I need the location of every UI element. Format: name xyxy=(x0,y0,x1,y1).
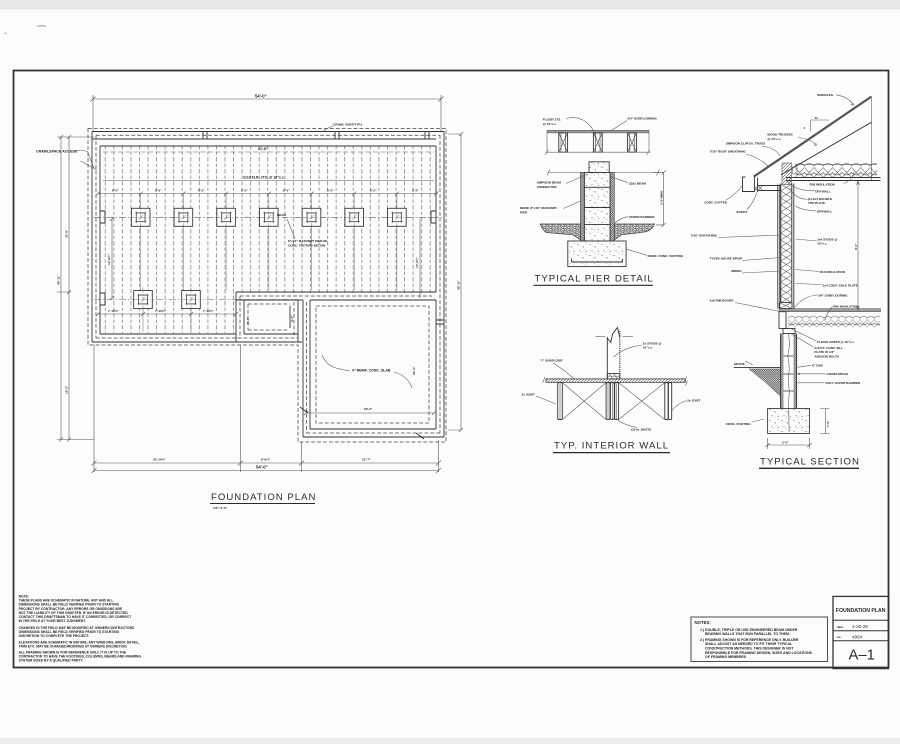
svg-text:TOP PLATE: TOP PLATE xyxy=(808,201,825,205)
svg-text:1-20-25: 1-20-25 xyxy=(852,624,868,629)
svg-text:ANCHOR BOLTS: ANCHOR BOLTS xyxy=(814,354,839,358)
svg-text:2x JOIST: 2x JOIST xyxy=(687,399,700,403)
svg-text:46'-11": 46'-11" xyxy=(457,280,461,290)
svg-text:3/4" SUBFLOORING: 3/4" SUBFLOORING xyxy=(627,117,657,121)
svg-text:54'-0": 54'-0" xyxy=(256,465,268,470)
svg-text:REINF. CONC. FOOTING: REINF. CONC. FOOTING xyxy=(648,254,684,258)
svg-text:1/4"=1'-0": 1/4"=1'-0" xyxy=(213,506,228,510)
svg-text:2x4 CONT. SOLE PLATE: 2x4 CONT. SOLE PLATE xyxy=(823,283,858,287)
svg-text:16"o.c.: 16"o.c. xyxy=(643,346,653,350)
svg-text:7'-10½": 7'-10½" xyxy=(108,309,120,313)
svg-text:7/16" SHEATHING: 7/16" SHEATHING xyxy=(691,234,718,238)
svg-text:SOFFIT: SOFFIT xyxy=(736,210,747,214)
svg-text:8'-2": 8'-2" xyxy=(283,189,290,193)
svg-text:(2)-2x JOISTS: (2)-2x JOISTS xyxy=(631,428,651,432)
svg-text:CONC. FOOTING BELOW: CONC. FOOTING BELOW xyxy=(288,243,325,247)
svg-text:TRIM ETC. MAY BE CHANGED/MODIF: TRIM ETC. MAY BE CHANGED/MODIFIED AT OWN… xyxy=(19,645,128,649)
svg-text:TYVEK HOUSE WRAP: TYVEK HOUSE WRAP xyxy=(710,257,743,261)
svg-text:R30 INSULATION: R30 INSULATION xyxy=(833,305,859,309)
svg-text:8'-2": 8'-2" xyxy=(327,189,334,193)
svg-text:8'-2": 8'-2" xyxy=(370,189,377,193)
svg-text:CONC. FOOTING: CONC. FOOTING xyxy=(726,422,752,426)
svg-text:46'-11": 46'-11" xyxy=(57,275,61,285)
svg-text:6'-4": 6'-4" xyxy=(290,315,294,322)
svg-text:8'-1": 8'-1" xyxy=(854,243,858,250)
svg-text:TYP. INTERIOR WALL: TYP. INTERIOR WALL xyxy=(554,441,669,452)
svg-text:FOUNDATION PLAN: FOUNDATION PLAN xyxy=(211,492,316,503)
svg-text:22'-8": 22'-8" xyxy=(258,147,268,151)
svg-text:SHINGLES: SHINGLES xyxy=(817,93,833,97)
svg-text:4" REINF. CONC. SLAB: 4" REINF. CONC. SLAB xyxy=(352,369,391,373)
svg-text:OF FRAMING MEMBERS: OF FRAMING MEMBERS xyxy=(705,655,747,659)
svg-text:2x10 FLR. JTS. @ 16"o.c.: 2x10 FLR. JTS. @ 16"o.c. xyxy=(243,176,285,180)
svg-text:BEARING WALLS THAT RUN PARALLE: BEARING WALLS THAT RUN PARALLEL TO THEM. xyxy=(705,632,790,636)
svg-text:CRAWL VENT(TYP.): CRAWL VENT(TYP.) xyxy=(333,123,362,127)
svg-text:POLY VAPOR BARRIER: POLY VAPOR BARRIER xyxy=(826,381,861,385)
svg-text:TYPICAL PIER DETAIL: TYPICAL PIER DETAIL xyxy=(535,274,654,285)
svg-text:R38 INSULATION: R38 INSULATION xyxy=(810,182,836,186)
svg-text:8'-6½": 8'-6½" xyxy=(261,458,271,462)
svg-text:(2)2x BEAM: (2)2x BEAM xyxy=(629,181,647,185)
svg-text:DRYWALL: DRYWALL xyxy=(815,189,830,193)
svg-text:PIER: PIER xyxy=(520,210,528,214)
svg-text:4: 4 xyxy=(804,126,806,130)
svg-text:3/4" SUBFLOORING: 3/4" SUBFLOORING xyxy=(818,293,848,297)
svg-text:FLOOR JOISTS @ 16"o.c.: FLOOR JOISTS @ 16"o.c. xyxy=(817,340,855,344)
svg-text:SIMPSON CLIP EA. TRUSS: SIMPSON CLIP EA. TRUSS xyxy=(726,142,765,146)
svg-text:SIDING: SIDING xyxy=(731,269,742,273)
svg-text:7'-10½": 7'-10½" xyxy=(203,309,215,313)
svg-text:CRAWLSPACE ACCESS: CRAWLSPACE ACCESS xyxy=(36,150,78,154)
svg-text:21'-7": 21'-7" xyxy=(362,458,371,462)
svg-text:22'-10½": 22'-10½" xyxy=(153,458,166,462)
svg-text:IN THE FIELD AT YOUR BEST JUDG: IN THE FIELD AT YOUR BEST JUDGMENT. xyxy=(19,619,86,623)
svg-text:54'-0": 54'-0" xyxy=(255,94,267,99)
svg-text:2'-0"(MIN): 2'-0"(MIN) xyxy=(660,191,664,205)
svg-text:8'-2": 8'-2" xyxy=(412,189,419,193)
svg-text:12'-6½": 12'-6½" xyxy=(415,256,419,268)
svg-text:CRAWLSPACE: CRAWLSPACE xyxy=(827,372,849,376)
svg-text:20'-2": 20'-2" xyxy=(412,366,416,375)
svg-text:8'-2": 8'-2" xyxy=(155,189,162,193)
svg-text:R13 INSULATION: R13 INSULATION xyxy=(820,270,846,274)
svg-text:@ 24"o.c.: @ 24"o.c. xyxy=(767,137,781,141)
svg-text:2x6 RIM BOARD: 2x6 RIM BOARD xyxy=(710,299,735,303)
svg-text:7/16" ROOF SHEATHING: 7/16" ROOF SHEATHING xyxy=(710,149,747,153)
svg-text:NOTES:: NOTES: xyxy=(695,620,712,625)
svg-text:1'-0": 1'-0" xyxy=(826,420,830,427)
svg-text:DISCRETION TO COMPLETE THE PRO: DISCRETION TO COMPLETE THE PROJECT. xyxy=(19,634,90,638)
svg-text:CONT. GUTTER: CONT. GUTTER xyxy=(704,201,728,205)
svg-text:CONNECTOR: CONNECTOR xyxy=(537,185,558,189)
svg-text:@ 16"o.c.: @ 16"o.c. xyxy=(543,122,557,126)
svg-text:FOUNDATION PLAN: FOUNDATION PLAN xyxy=(836,608,886,614)
svg-text:15'-2": 15'-2" xyxy=(65,385,69,394)
svg-text:no.: no. xyxy=(837,635,842,639)
svg-text:¾" SUBFLOOR: ¾" SUBFLOOR xyxy=(540,359,563,363)
svg-text:20'-2": 20'-2" xyxy=(364,407,373,411)
svg-text:16"o.c.: 16"o.c. xyxy=(817,242,827,246)
svg-text:12: 12 xyxy=(815,116,819,120)
svg-text:TYPICAL SECTION: TYPICAL SECTION xyxy=(760,457,860,468)
svg-text:12'-6½": 12'-6½" xyxy=(107,253,111,265)
svg-text:8" CMU: 8" CMU xyxy=(812,364,824,368)
svg-text:date: date xyxy=(837,625,844,629)
svg-text:A–1: A–1 xyxy=(849,648,875,664)
svg-text:31'-9": 31'-9" xyxy=(65,229,69,238)
svg-text:8'-2": 8'-2" xyxy=(241,189,248,193)
svg-text:8'-4": 8'-4" xyxy=(246,317,250,324)
svg-text:2'-0": 2'-0" xyxy=(782,441,789,445)
svg-text:VAPOR BARRIER: VAPOR BARRIER xyxy=(629,215,655,219)
svg-text:SYSTEM SIZED BY A QUALIFIED PA: SYSTEM SIZED BY A QUALIFIED PARTY. xyxy=(19,659,84,663)
svg-text:7'-10½": 7'-10½" xyxy=(155,309,167,313)
svg-text:2x JOIST: 2x JOIST xyxy=(522,393,535,397)
svg-text:8'-2": 8'-2" xyxy=(112,189,119,193)
svg-text:4954: 4954 xyxy=(852,635,863,640)
svg-text:8'-2": 8'-2" xyxy=(198,189,205,193)
svg-text:GRADE: GRADE xyxy=(734,362,745,366)
svg-text:BEAM: BEAM xyxy=(277,213,287,217)
svg-text:DRYWALL: DRYWALL xyxy=(817,210,832,214)
